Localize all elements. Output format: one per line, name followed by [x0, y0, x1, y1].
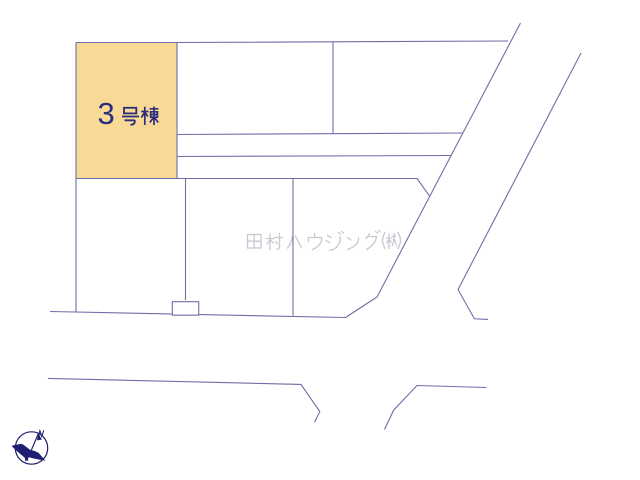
- svg-text:3: 3: [98, 96, 115, 131]
